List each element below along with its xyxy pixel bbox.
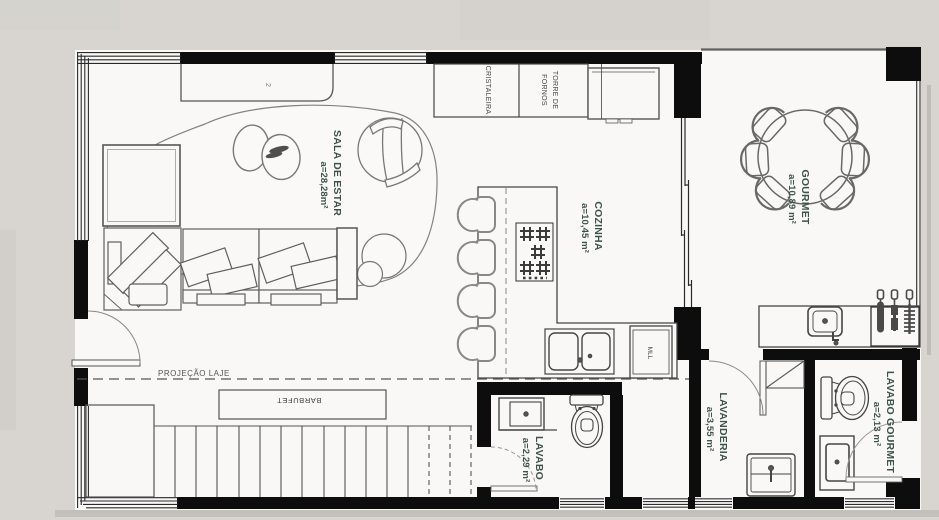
- svg-text:TORRE DE: TORRE DE: [551, 71, 558, 109]
- svg-text:a=2,29 m²: a=2,29 m²: [520, 438, 531, 482]
- svg-text:GOURMET: GOURMET: [799, 169, 811, 224]
- svg-text:a=2,13 m²: a=2,13 m²: [871, 402, 882, 446]
- svg-text:MLL: MLL: [646, 347, 653, 360]
- svg-text:a=10,89 m²: a=10,89 m²: [786, 174, 797, 224]
- svg-text:a=10,45 m²: a=10,45 m²: [579, 203, 590, 253]
- svg-text:a=3,55 m²: a=3,55 m²: [704, 407, 715, 451]
- svg-text:LAVABO GOURMET: LAVABO GOURMET: [884, 371, 896, 474]
- svg-text:LAVABO: LAVABO: [533, 436, 545, 480]
- svg-text:PROJEÇÃO LAJE: PROJEÇÃO LAJE: [158, 369, 230, 378]
- svg-text:a=28,28m²: a=28,28m²: [318, 161, 329, 208]
- svg-text:LAVANDERIA: LAVANDERIA: [717, 392, 729, 461]
- svg-text:SALA DE ESTAR: SALA DE ESTAR: [331, 130, 343, 216]
- svg-text:2: 2: [264, 83, 271, 87]
- svg-text:FORNOS: FORNOS: [540, 74, 547, 106]
- svg-text:BARBUFET: BARBUFET: [277, 396, 322, 405]
- svg-text:COZINHA: COZINHA: [592, 201, 604, 250]
- svg-text:CRISTALEIRA: CRISTALEIRA: [484, 66, 491, 115]
